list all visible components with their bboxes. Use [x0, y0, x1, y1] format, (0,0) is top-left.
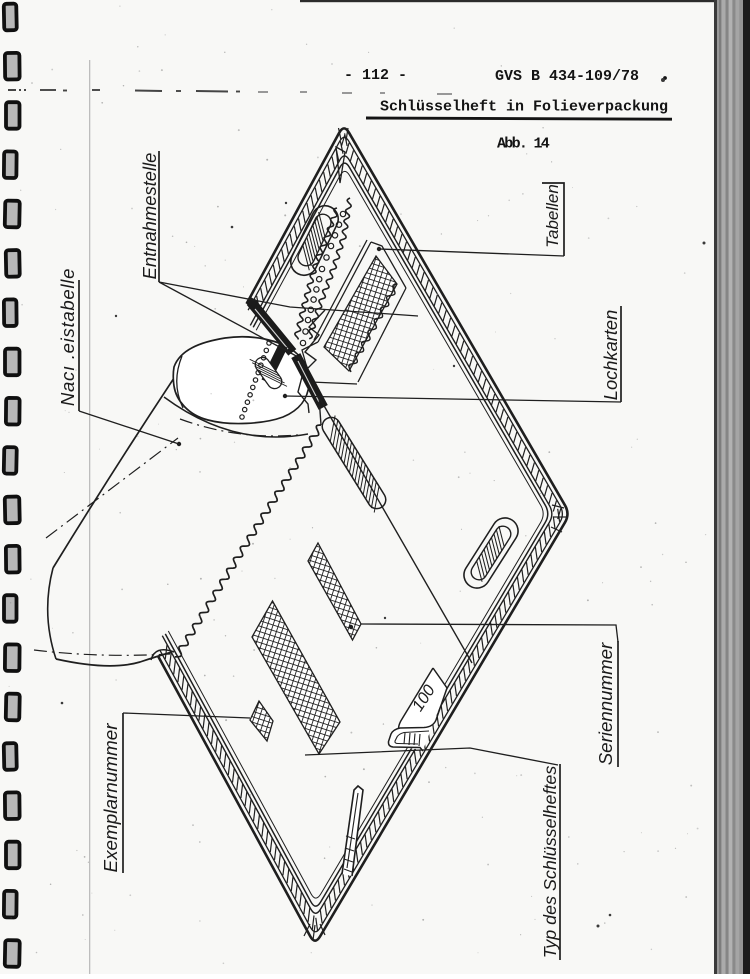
svg-text:Lochkarten: Lochkarten — [600, 310, 621, 400]
svg-text:Abb. 14: Abb. 14 — [497, 136, 550, 153]
svg-text:GVS B 434-109/78: GVS B 434-109/78 — [495, 68, 639, 85]
svg-text:Schlüsselheft in Folieverpacku: Schlüsselheft in Folieverpackung — [380, 99, 668, 116]
svg-text:- 112 -: - 112 - — [344, 67, 407, 84]
svg-text:Entnahmestelle: Entnahmestelle — [139, 153, 160, 280]
svg-text:Seriennummer: Seriennummer — [595, 642, 616, 765]
svg-text:Tabellen: Tabellen — [543, 184, 562, 248]
svg-text:Nacı .eistabelle: Nacı .eistabelle — [57, 268, 78, 406]
svg-text:Exemplarnummer: Exemplarnummer — [101, 723, 122, 873]
svg-text:Typ des Schlüsselheftes: Typ des Schlüsselheftes — [540, 766, 560, 959]
